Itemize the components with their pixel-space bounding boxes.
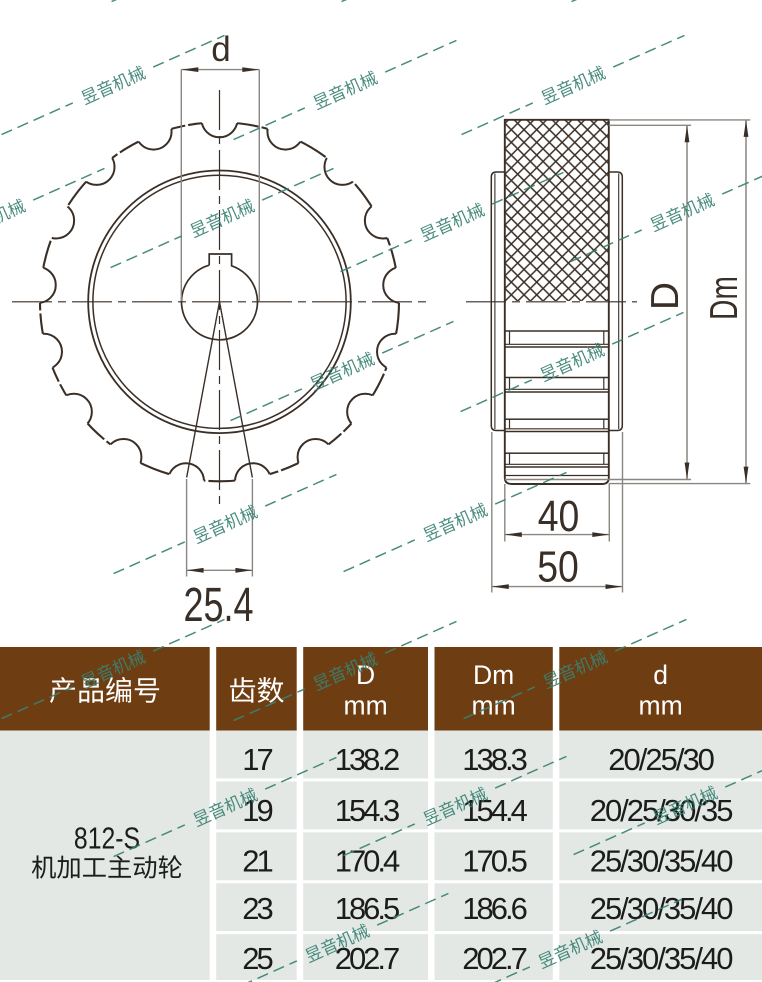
svg-text:Dm: Dm (703, 276, 747, 320)
svg-text:mm: mm (472, 691, 516, 721)
svg-text:20/25/30: 20/25/30 (608, 742, 714, 777)
svg-text:138.3: 138.3 (462, 742, 526, 777)
svg-text:186.6: 186.6 (462, 891, 526, 926)
svg-text:21: 21 (242, 844, 272, 879)
svg-text:154.4: 154.4 (462, 793, 527, 828)
svg-text:25.4: 25.4 (183, 578, 253, 631)
svg-text:202.7: 202.7 (335, 941, 399, 976)
svg-text:202.7: 202.7 (462, 941, 526, 976)
svg-text:50: 50 (537, 542, 579, 592)
svg-text:170.4: 170.4 (335, 844, 400, 879)
svg-text:25/30/35/40: 25/30/35/40 (590, 941, 734, 976)
svg-text:170.5: 170.5 (462, 844, 526, 879)
svg-text:mm: mm (344, 691, 388, 721)
svg-text:Dm: Dm (473, 660, 514, 690)
svg-text:d: d (653, 660, 668, 690)
svg-text:186.5: 186.5 (335, 891, 399, 926)
svg-text:138.2: 138.2 (335, 742, 399, 777)
svg-text:154.3: 154.3 (335, 793, 399, 828)
svg-text:25/30/35/40: 25/30/35/40 (590, 844, 734, 879)
svg-text:D: D (644, 282, 687, 310)
svg-text:25: 25 (242, 941, 272, 976)
svg-text:D: D (356, 660, 375, 690)
svg-text:17: 17 (242, 742, 272, 777)
svg-text:d: d (211, 30, 230, 69)
svg-text:mm: mm (639, 691, 683, 721)
svg-text:40: 40 (538, 491, 580, 541)
svg-text:23: 23 (242, 891, 272, 926)
